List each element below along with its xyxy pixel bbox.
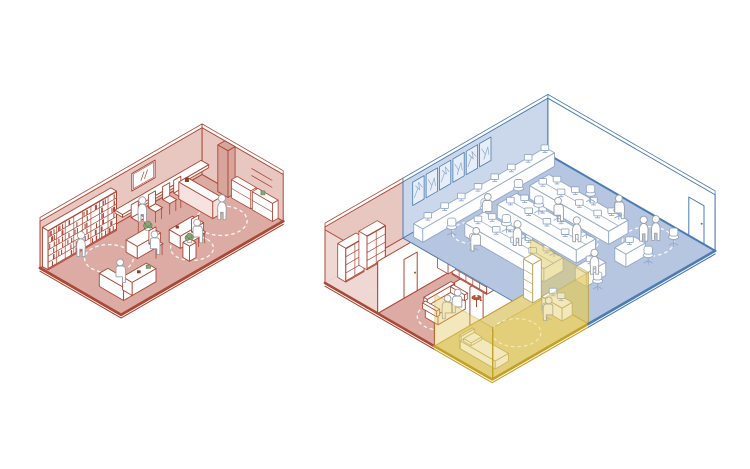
- axonometric-diagram-canvas: [0, 0, 750, 469]
- table-item: [475, 295, 477, 297]
- counter-item: [185, 178, 189, 182]
- counter-item: [137, 270, 141, 273]
- axonometric-illustration-page: [0, 0, 750, 469]
- planter-box: [261, 191, 265, 195]
- desk-item: [176, 226, 179, 229]
- right-room-diagram: [325, 94, 715, 382]
- interior-door: [404, 252, 417, 298]
- shelf-tower: [524, 254, 542, 303]
- planter-box: [146, 265, 150, 268]
- left-room-diagram: [40, 124, 283, 318]
